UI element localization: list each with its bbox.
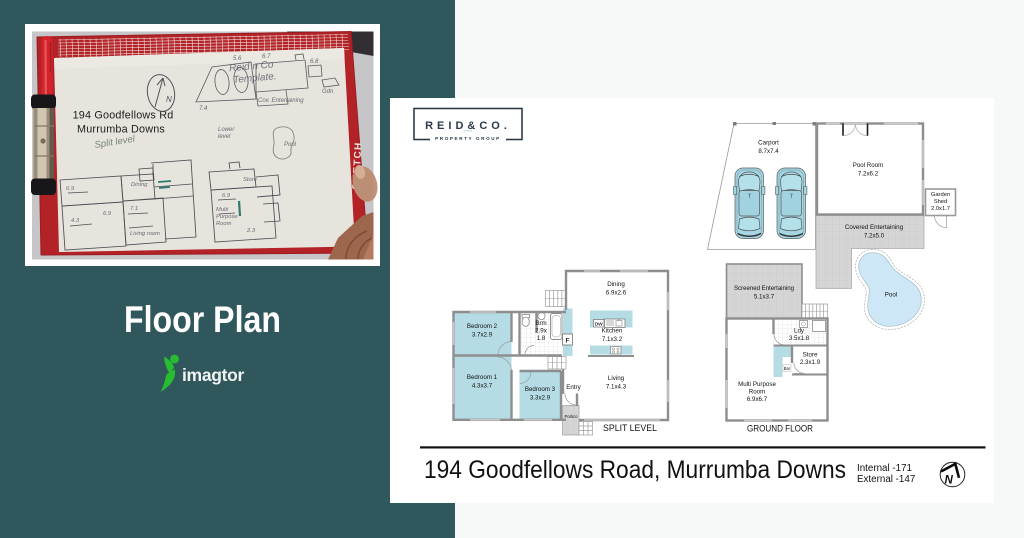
svg-text:Garden: Garden bbox=[931, 192, 950, 198]
svg-text:Kitchen: Kitchen bbox=[602, 328, 623, 335]
svg-text:Floor Plan: Floor Plan bbox=[124, 299, 281, 340]
svg-text:F: F bbox=[566, 337, 570, 344]
svg-text:3.5x1.8: 3.5x1.8 bbox=[789, 335, 810, 342]
svg-text:2.0x1.7: 2.0x1.7 bbox=[931, 206, 950, 212]
svg-text:2.3x1.9: 2.3x1.9 bbox=[800, 359, 821, 366]
svg-text:3.7x2.9: 3.7x2.9 bbox=[472, 332, 493, 339]
svg-text:SPLIT LEVEL: SPLIT LEVEL bbox=[603, 423, 657, 434]
svg-text:Carport: Carport bbox=[758, 140, 779, 147]
svg-text:7.2x5.0: 7.2x5.0 bbox=[864, 233, 885, 240]
svg-text:7.2x6.2: 7.2x6.2 bbox=[858, 171, 879, 178]
svg-text:194 Goodfellows Road, Murrumba: 194 Goodfellows Road, Murrumba Downs bbox=[424, 456, 846, 484]
svg-text:GROUND FLOOR: GROUND FLOOR bbox=[747, 424, 813, 435]
svg-text:Store: Store bbox=[803, 352, 818, 359]
svg-text:Room: Room bbox=[749, 389, 766, 396]
svg-text:REID&CO.: REID&CO. bbox=[425, 120, 511, 132]
svg-text:Entry: Entry bbox=[566, 384, 581, 391]
svg-text:2.9x: 2.9x bbox=[535, 328, 548, 335]
svg-text:1.8: 1.8 bbox=[537, 335, 546, 342]
svg-text:Bar: Bar bbox=[784, 366, 791, 371]
svg-text:7.1x4.3: 7.1x4.3 bbox=[606, 384, 627, 391]
svg-text:Pool: Pool bbox=[885, 292, 897, 299]
svg-text:3.3x2.9: 3.3x2.9 bbox=[530, 395, 551, 402]
svg-text:7.1x3.2: 7.1x3.2 bbox=[602, 336, 623, 343]
svg-text:Pool Room: Pool Room bbox=[853, 162, 884, 169]
svg-text:8.7x7.4: 8.7x7.4 bbox=[758, 148, 779, 155]
svg-text:PROPERTY GROUP: PROPERTY GROUP bbox=[435, 136, 501, 141]
svg-text:Dining: Dining bbox=[607, 281, 625, 288]
svg-text:Ldy: Ldy bbox=[794, 328, 805, 335]
svg-text:4.3x3.7: 4.3x3.7 bbox=[472, 383, 493, 390]
svg-text:Bedroom 1: Bedroom 1 bbox=[467, 374, 498, 381]
svg-text:6.9x2.6: 6.9x2.6 bbox=[606, 290, 627, 297]
svg-text:6.9x6.7: 6.9x6.7 bbox=[747, 396, 768, 403]
svg-text:N: N bbox=[945, 475, 954, 487]
svg-text:5.1x3.7: 5.1x3.7 bbox=[754, 294, 775, 301]
svg-text:Brm: Brm bbox=[535, 320, 546, 327]
svg-text:Screened Entertaining: Screened Entertaining bbox=[734, 285, 795, 292]
svg-text:Bedroom 2: Bedroom 2 bbox=[467, 323, 498, 330]
svg-text:Internal -171: Internal -171 bbox=[857, 463, 912, 474]
svg-text:Multi Purpose: Multi Purpose bbox=[738, 381, 776, 388]
svg-text:Portico: Portico bbox=[564, 414, 578, 419]
svg-text:Bedroom 3: Bedroom 3 bbox=[525, 386, 556, 393]
svg-text:Living: Living bbox=[608, 375, 625, 382]
svg-text:Shed: Shed bbox=[934, 199, 948, 205]
svg-text:Covered Entertaining: Covered Entertaining bbox=[845, 224, 904, 231]
svg-text:External -147: External -147 bbox=[857, 474, 915, 485]
svg-text:imagtor: imagtor bbox=[182, 365, 245, 385]
